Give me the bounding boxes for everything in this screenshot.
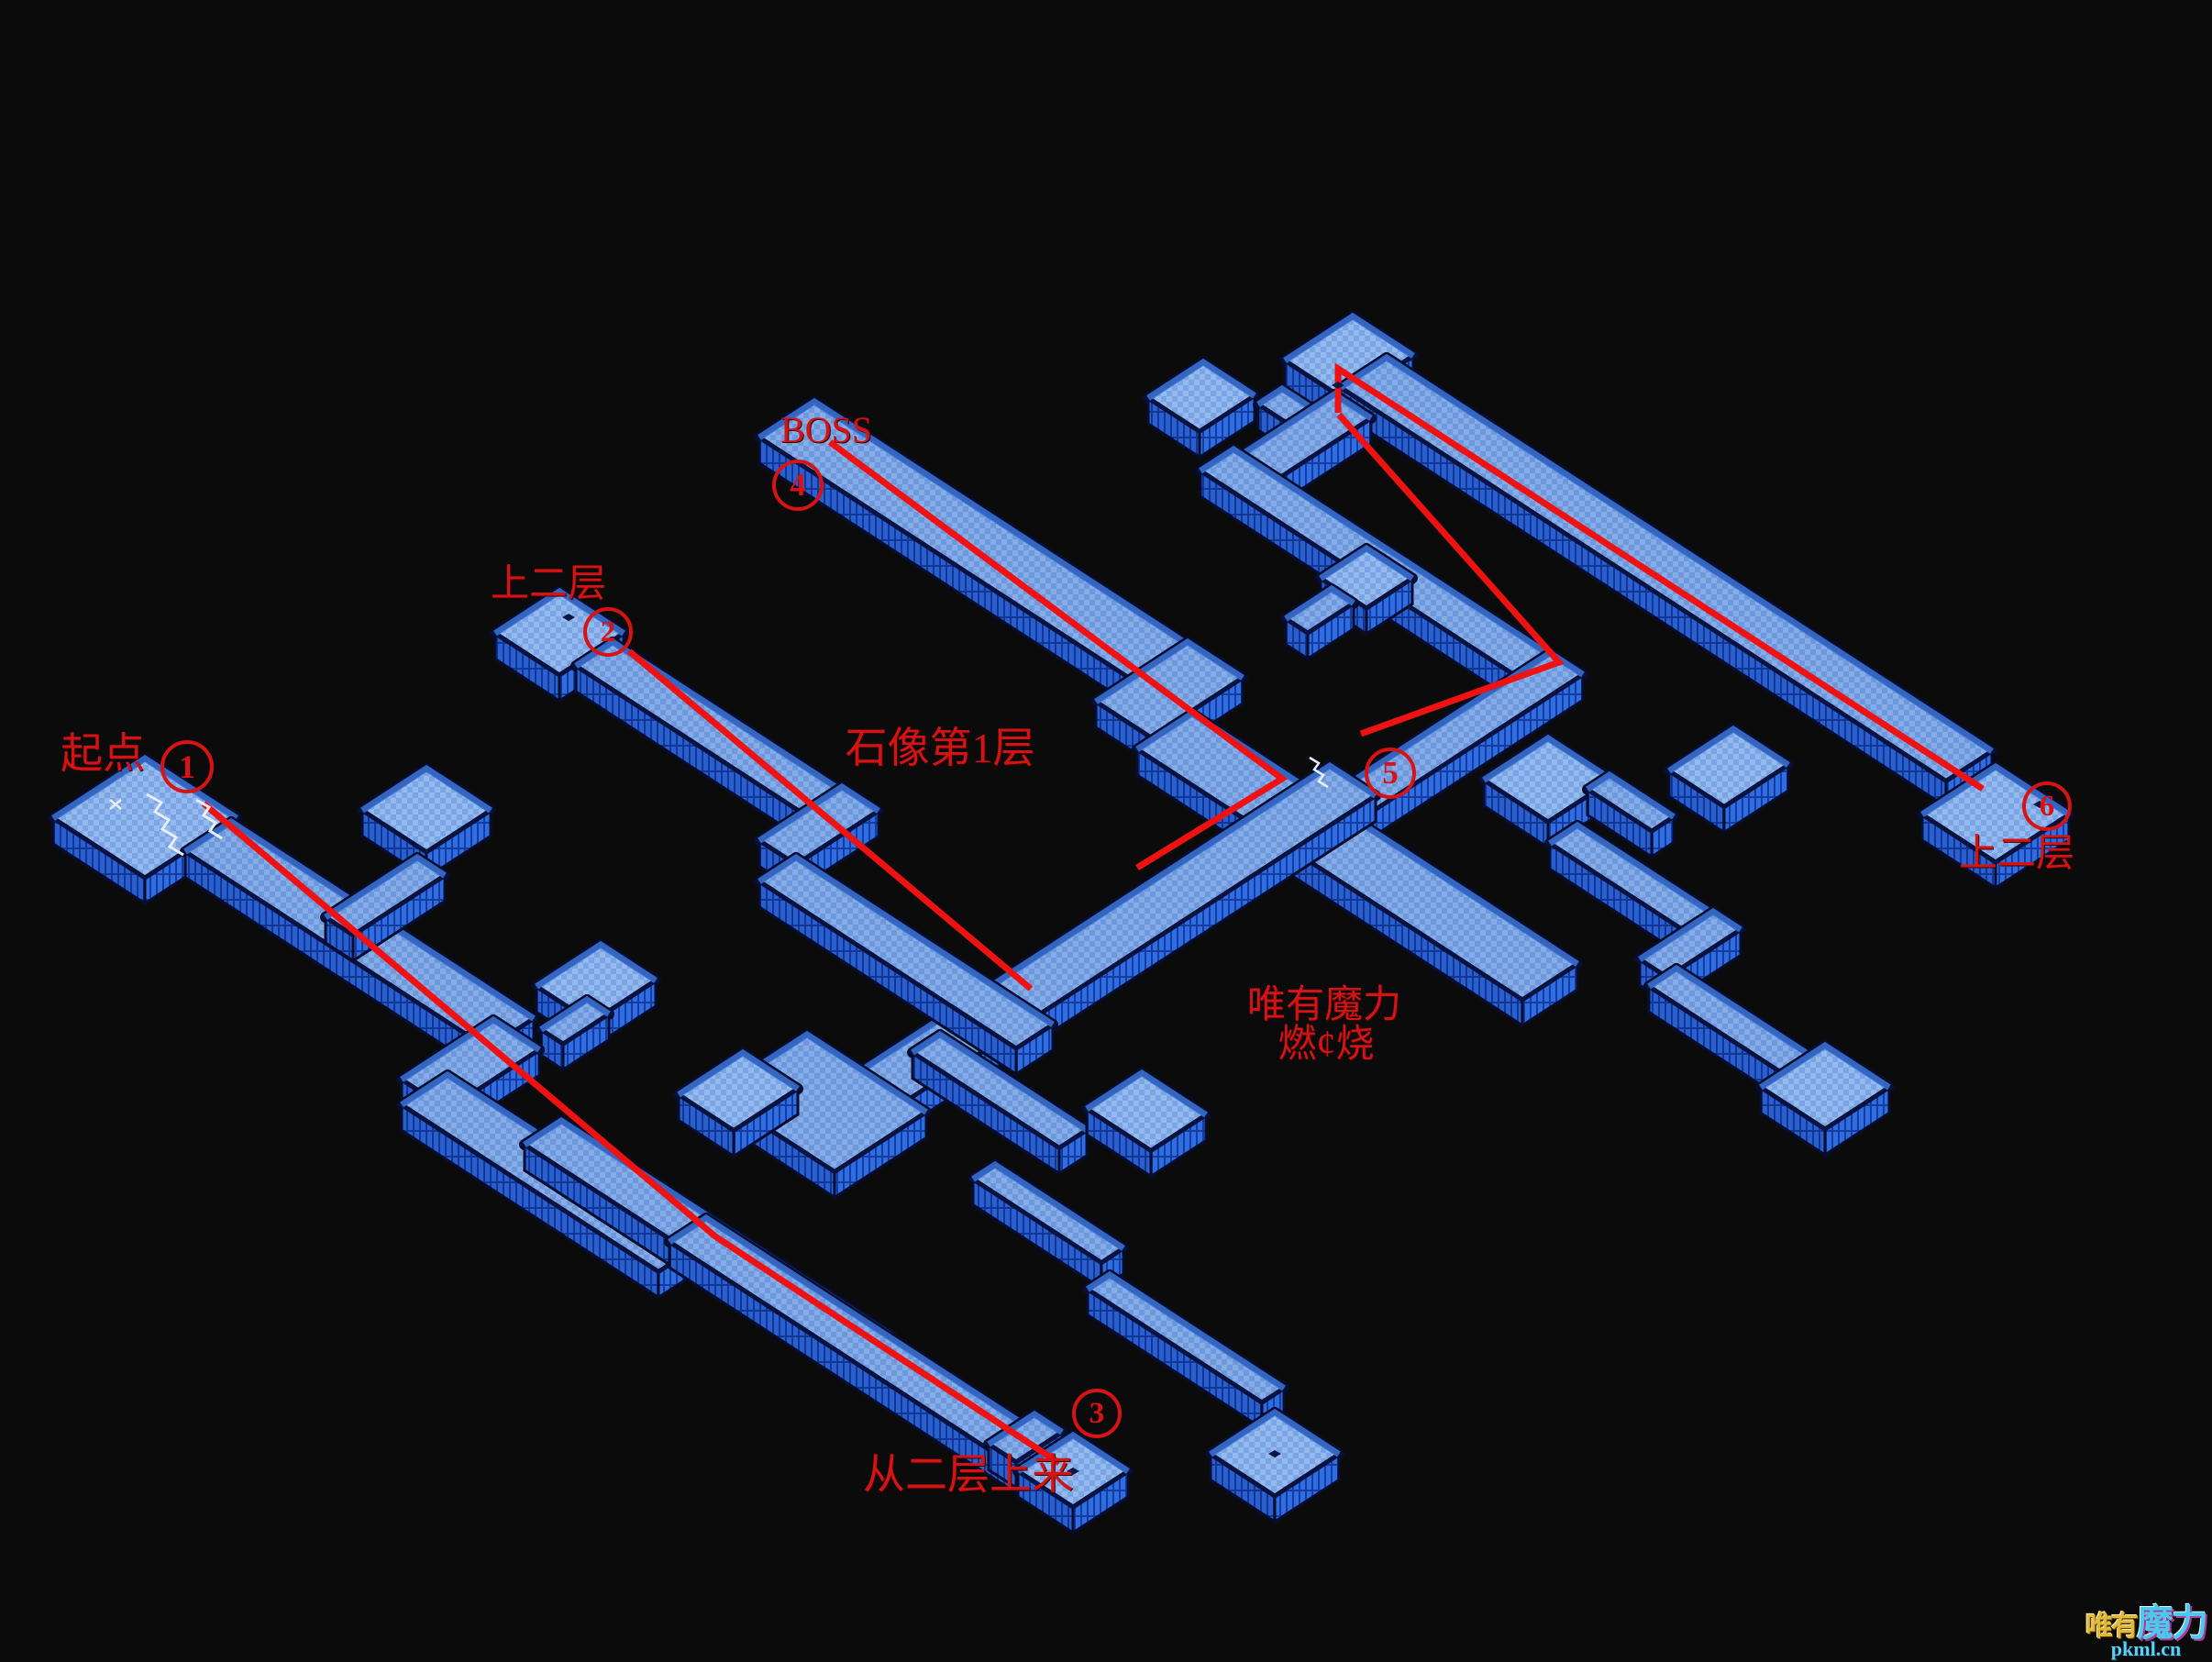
waypoint-5-circle: 5 [1365,748,1416,799]
map-structure-room-h2 [1211,1413,1339,1522]
waypoint-3-circle: 3 [1072,1389,1122,1438]
label-magic-line1: 唯有魔力 [1247,985,1401,1025]
waypoint-2-circle: 2 [583,607,633,657]
site-watermark: 唯有魔力 pkml.cn [2085,1607,2206,1658]
map-structure-room-h [1087,1073,1206,1177]
label-statue-floor1: 石像第1层 [846,726,1035,770]
waypoint-1-circle: 1 [160,740,214,793]
label-boss: BOSS [780,411,872,449]
map-structure-stub-p [1286,589,1354,659]
waypoint-4-circle: 4 [772,460,824,511]
label-start-point: 起点 [61,732,145,776]
waypoint-6-circle: 6 [2022,781,2072,831]
label-from-floor2: 从二层上来 [863,1453,1074,1497]
map-structure-corr-h1 [973,1165,1123,1289]
map-structure-room-q [1669,729,1788,833]
map-structure-room-top-left [1148,362,1255,457]
label-up-2f-right: 上二层 [1959,834,2074,874]
dungeon-map-screenshot: 起点 上二层 BOSS 石像第1层 唯有魔力 燃¢烧 从二层上来 上二层 1 2… [0,0,2212,1662]
label-up-2f-left: 上二层 [491,564,606,604]
label-magic-line2: 燃¢烧 [1277,1025,1374,1065]
watermark-brand: 唯有魔力 [2085,1607,2206,1640]
